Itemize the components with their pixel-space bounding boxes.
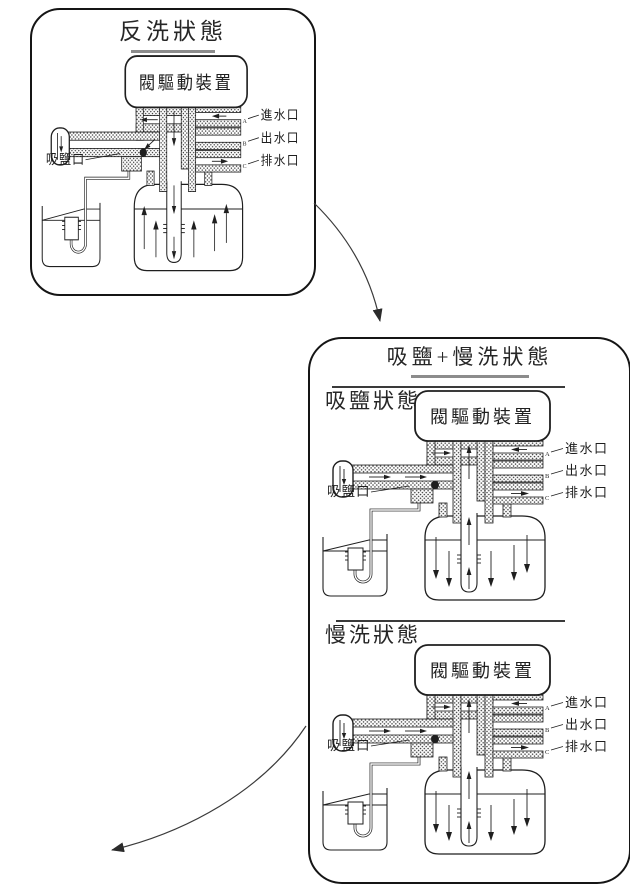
connector-arrow-exit bbox=[112, 726, 306, 850]
valve-body-part bbox=[67, 132, 159, 140]
port-key-B: B bbox=[545, 727, 550, 734]
valve-body-part bbox=[122, 157, 142, 171]
port-key-A: A bbox=[243, 117, 248, 124]
drain-flow-arrow bbox=[521, 745, 529, 750]
brine-valve-diagram: A進水口B出水口C排水口吸鹽口閥驅動裝置 bbox=[315, 389, 623, 614]
slow-rinse-valve-diagram: A進水口B出水口C排水口吸鹽口閥驅動裝置 bbox=[315, 643, 623, 868]
check-ball bbox=[431, 735, 439, 743]
outlet-port-wall bbox=[493, 461, 543, 468]
drive-device-label: 閥驅動裝置 bbox=[139, 73, 234, 93]
panel-backwash: 反洗狀態 A進水口B出水口C排水口吸鹽口閥驅動裝置 bbox=[30, 8, 316, 296]
drive-device-label: 閥驅動裝置 bbox=[430, 661, 535, 681]
valve-body-part bbox=[205, 171, 212, 185]
section-divider-middle bbox=[336, 620, 565, 622]
valve-body-part bbox=[485, 439, 493, 523]
brine-strainer bbox=[348, 548, 363, 570]
valve-body-part bbox=[485, 693, 493, 777]
drain-port-wall bbox=[493, 737, 543, 744]
outlet-port-wall bbox=[493, 475, 543, 482]
inlet-port-wall bbox=[493, 453, 543, 460]
port-label-C: 排水口 bbox=[261, 153, 300, 168]
outlet-port-wall bbox=[196, 142, 241, 149]
connector-arrow-to-brine-panel bbox=[314, 203, 380, 321]
drain-port-wall bbox=[493, 497, 543, 504]
drain-port-wall bbox=[196, 151, 241, 158]
valve-body-part bbox=[503, 503, 511, 517]
brine-strainer bbox=[348, 802, 363, 824]
drain-flow-arrow bbox=[521, 491, 529, 496]
valve-body-part bbox=[160, 107, 167, 191]
port-key-C: C bbox=[545, 749, 549, 756]
inlet-flow-arrow bbox=[511, 701, 519, 706]
outlet-port-wall bbox=[493, 715, 543, 722]
valve-body-part bbox=[439, 503, 447, 517]
drain-port-wall bbox=[493, 483, 543, 490]
valve-body-part bbox=[503, 757, 511, 771]
header-flow-arrow bbox=[444, 451, 451, 456]
valve-body-part bbox=[188, 105, 195, 191]
drive-device-label: 閥驅動裝置 bbox=[430, 407, 535, 427]
header-flow-arrow bbox=[444, 705, 451, 710]
valve-diagram-group: A進水口B出水口C排水口吸鹽口閥驅動裝置 bbox=[323, 391, 609, 600]
port-label-A: 進水口 bbox=[565, 441, 609, 456]
valve-body-part bbox=[411, 489, 433, 503]
page: 反洗狀態 A進水口B出水口C排水口吸鹽口閥驅動裝置 吸鹽+慢洗狀態 吸鹽狀態 A… bbox=[0, 0, 630, 887]
valve-diagram-group: A進水口B出水口C排水口吸鹽口閥驅動裝置 bbox=[42, 56, 300, 271]
inlet-port-wall bbox=[493, 707, 543, 714]
brine-strainer bbox=[65, 217, 79, 240]
valve-body-part bbox=[147, 171, 154, 185]
injector-flow-arrow bbox=[420, 475, 427, 480]
outlet-port-wall bbox=[493, 729, 543, 736]
title-underline bbox=[411, 375, 529, 378]
injector-flow-arrow bbox=[384, 475, 391, 480]
panel-brine-slow-rinse-title: 吸鹽+慢洗狀態 bbox=[310, 346, 629, 369]
port-key-A: A bbox=[545, 705, 550, 712]
brine-port-label: 吸鹽口 bbox=[46, 151, 85, 167]
drain-port-wall bbox=[493, 751, 543, 758]
title-underline bbox=[131, 50, 215, 53]
brine-port-label: 吸鹽口 bbox=[327, 484, 371, 499]
port-label-A: 進水口 bbox=[565, 695, 609, 710]
port-label-B: 出水口 bbox=[261, 131, 300, 146]
drain-port-wall bbox=[196, 165, 241, 172]
valve-body-part bbox=[439, 757, 447, 771]
inlet-flow-arrow bbox=[511, 447, 519, 452]
valve-body-part bbox=[453, 441, 461, 523]
brine-port-label: 吸鹽口 bbox=[327, 738, 371, 753]
port-key-B: B bbox=[545, 473, 550, 480]
drain-flow-arrow bbox=[221, 159, 228, 164]
panel-backwash-title: 反洗狀態 bbox=[32, 19, 314, 44]
valve-body-part bbox=[411, 743, 433, 757]
port-label-A: 進水口 bbox=[261, 108, 300, 123]
port-label-B: 出水口 bbox=[565, 463, 609, 478]
panel-brine-slow-rinse: 吸鹽+慢洗狀態 吸鹽狀態 A進水口B出水口C排水口吸鹽口閥驅動裝置 慢洗狀態 A… bbox=[308, 337, 630, 884]
section-divider-top bbox=[332, 386, 565, 388]
valve-body-part bbox=[351, 719, 453, 727]
valve-body-part bbox=[477, 695, 485, 755]
valve-body-part bbox=[181, 107, 188, 169]
port-label-C: 排水口 bbox=[565, 739, 609, 754]
inlet-flow-arrow bbox=[212, 114, 219, 119]
port-key-A: A bbox=[545, 451, 550, 458]
inlet-port-wall bbox=[196, 120, 241, 127]
check-ball bbox=[431, 481, 439, 489]
valve-diagram-group: A進水口B出水口C排水口吸鹽口閥驅動裝置 bbox=[323, 645, 609, 854]
valve-body-part bbox=[477, 441, 485, 501]
port-label-C: 排水口 bbox=[565, 485, 609, 500]
port-key-C: C bbox=[545, 495, 549, 502]
riser-flow-arrow bbox=[172, 138, 176, 146]
injector-flow-arrow bbox=[420, 729, 427, 734]
port-label-B: 出水口 bbox=[565, 717, 609, 732]
port-key-B: B bbox=[243, 140, 247, 147]
port-key-C: C bbox=[243, 163, 247, 170]
outlet-port-wall bbox=[196, 128, 241, 135]
injector-flow-arrow bbox=[384, 729, 391, 734]
check-ball bbox=[140, 148, 147, 156]
valve-body-part bbox=[453, 695, 461, 777]
backwash-valve-diagram: A進水口B出水口C排水口吸鹽口閥驅動裝置 bbox=[35, 54, 313, 285]
valve-body-part bbox=[351, 465, 453, 473]
